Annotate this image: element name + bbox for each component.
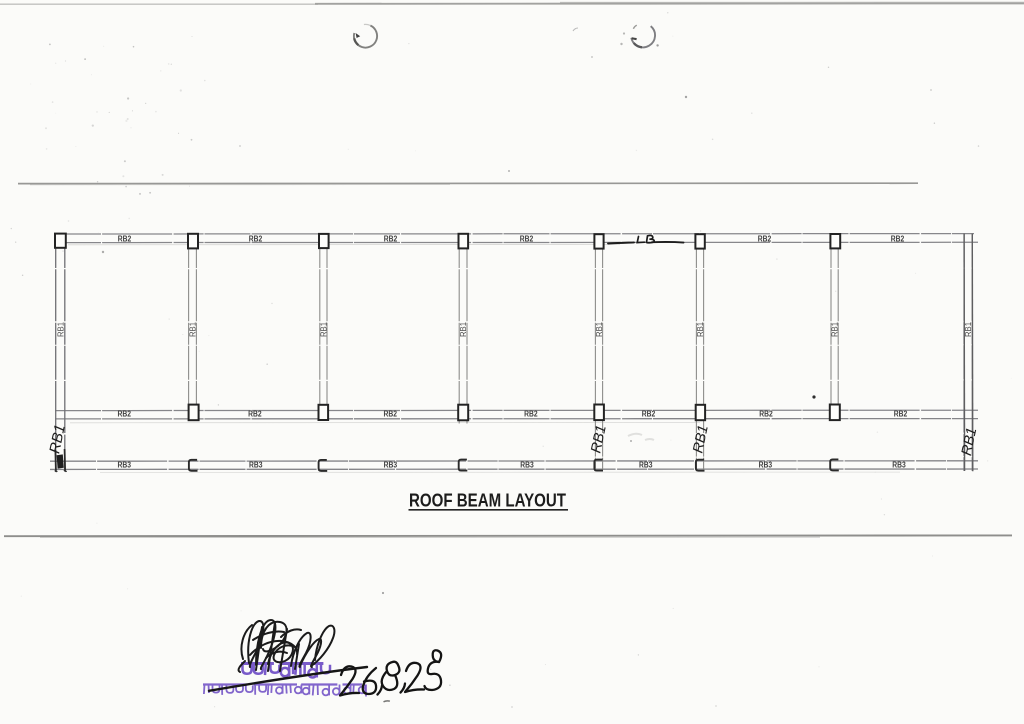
svg-text:RB3: RB3 xyxy=(118,460,132,470)
svg-text:ROOF BEAM LAYOUT: ROOF BEAM LAYOUT xyxy=(409,491,566,511)
svg-text:RB2: RB2 xyxy=(118,408,132,418)
svg-text:RB2: RB2 xyxy=(249,233,263,243)
svg-text:RB1: RB1 xyxy=(187,322,197,337)
svg-text:RB3: RB3 xyxy=(892,460,906,470)
svg-text:RB2: RB2 xyxy=(384,408,398,418)
svg-text:RB2: RB2 xyxy=(758,233,772,243)
svg-text:RB1: RB1 xyxy=(46,423,69,455)
svg-text:RB2: RB2 xyxy=(520,233,534,243)
svg-text:RB2: RB2 xyxy=(248,408,262,418)
svg-text:RB2: RB2 xyxy=(384,233,398,243)
svg-text:RB3: RB3 xyxy=(384,460,398,470)
svg-text:RB2: RB2 xyxy=(894,408,908,418)
svg-text:RB3: RB3 xyxy=(249,460,263,470)
svg-text:RB1: RB1 xyxy=(690,424,712,455)
svg-text:RB1: RB1 xyxy=(963,322,973,337)
svg-text:RB2: RB2 xyxy=(759,408,773,418)
svg-text:RB3: RB3 xyxy=(759,460,773,470)
svg-text:RB2: RB2 xyxy=(891,233,905,243)
svg-text:RB3: RB3 xyxy=(639,460,653,470)
svg-text:RB1: RB1 xyxy=(458,322,468,337)
svg-text:RB1: RB1 xyxy=(55,322,65,337)
svg-text:RB2: RB2 xyxy=(118,233,132,243)
svg-text:RB1: RB1 xyxy=(594,322,604,337)
svg-text:RB1: RB1 xyxy=(318,322,328,337)
svg-text:RB2: RB2 xyxy=(524,408,538,418)
svg-text:RB2: RB2 xyxy=(642,408,656,418)
svg-text:RB1: RB1 xyxy=(959,426,981,457)
svg-text:RB3: RB3 xyxy=(520,460,534,470)
svg-text:RB1: RB1 xyxy=(695,322,705,337)
svg-text:RB1: RB1 xyxy=(588,424,610,455)
svg-text:RB1: RB1 xyxy=(830,322,840,337)
